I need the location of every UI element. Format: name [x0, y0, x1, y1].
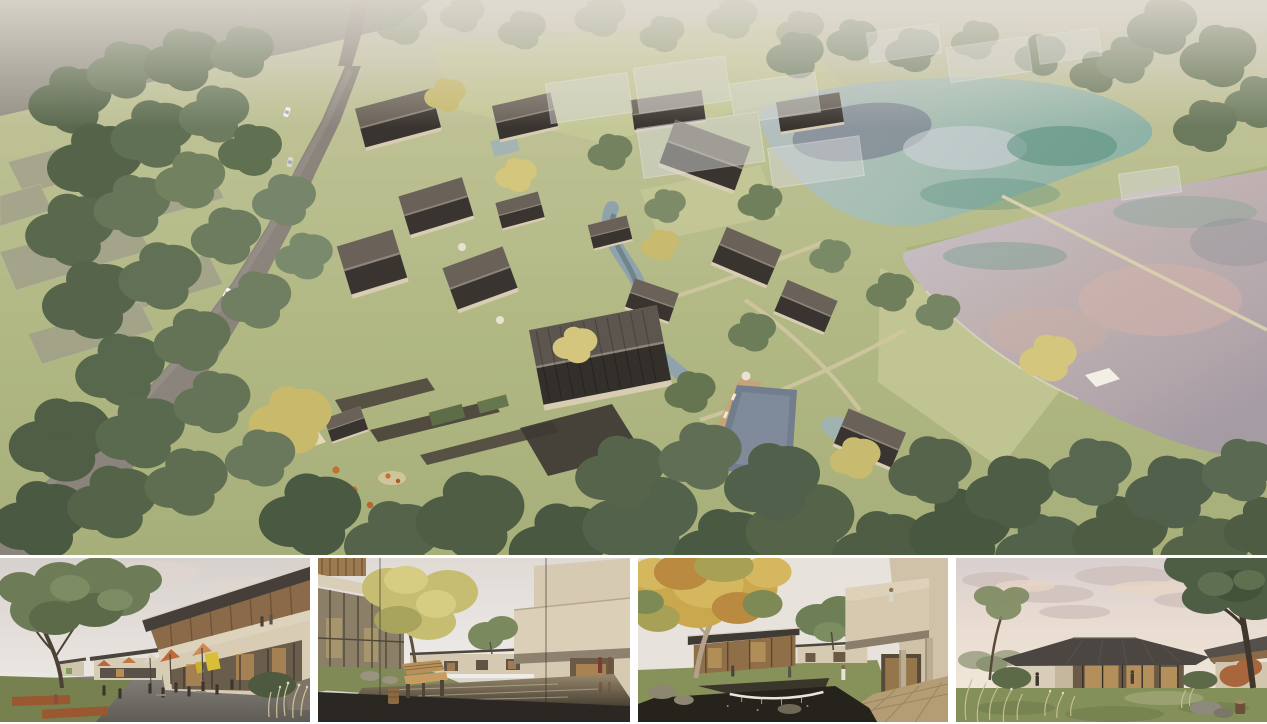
rendering-collage	[0, 0, 1267, 724]
water-courtyard-render	[318, 558, 630, 722]
dusk-pavilion-render	[956, 558, 1267, 722]
dusk-pavilion-panel	[956, 558, 1267, 722]
street-plaza-panel	[0, 558, 310, 722]
distance-haze	[0, 0, 1267, 128]
garden-pond-panel	[638, 558, 948, 722]
aerial-render	[0, 0, 1267, 555]
aerial-masterplan-panel	[0, 0, 1267, 555]
balcony-figure	[889, 588, 893, 602]
street-plaza-render	[0, 558, 310, 722]
water-courtyard-panel	[318, 558, 630, 722]
garden-pond-render	[638, 558, 948, 722]
